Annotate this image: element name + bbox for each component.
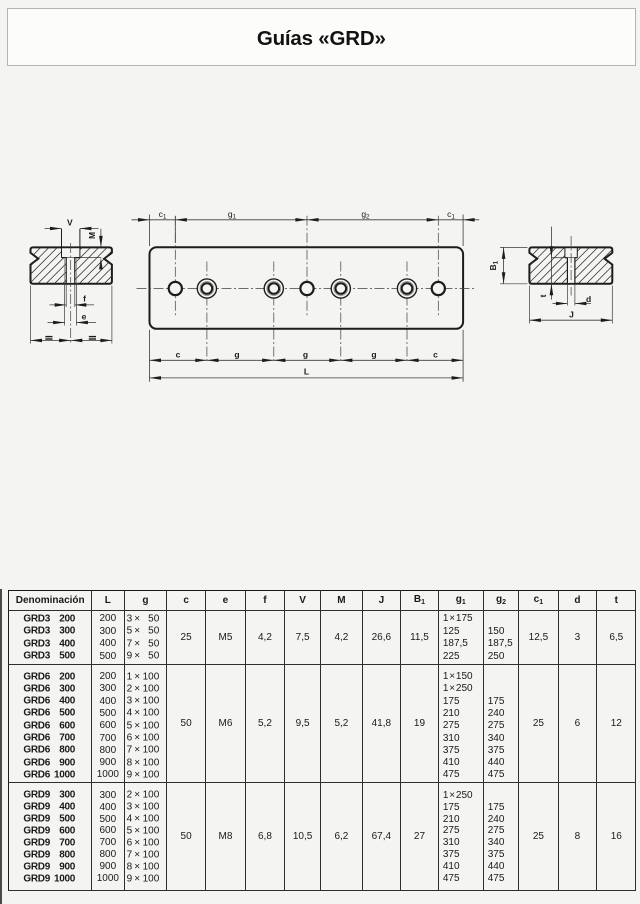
- svg-text:f: f: [83, 294, 86, 304]
- svg-text:M: M: [87, 232, 97, 239]
- svg-text:c1: c1: [159, 209, 167, 221]
- svg-text:t: t: [538, 294, 548, 297]
- svg-text:g: g: [234, 349, 239, 359]
- svg-text:B1: B1: [488, 260, 500, 270]
- svg-text:g: g: [371, 349, 376, 359]
- svg-text:d: d: [586, 294, 591, 304]
- svg-text:V: V: [67, 218, 73, 228]
- svg-text:e: e: [82, 311, 87, 321]
- svg-text:J: J: [569, 310, 574, 320]
- svg-text:g2: g2: [361, 209, 370, 221]
- svg-text:c: c: [176, 349, 181, 359]
- svg-text:L: L: [304, 367, 309, 377]
- svg-text:g1: g1: [228, 209, 237, 221]
- svg-text:g: g: [303, 349, 308, 359]
- svg-text:c1: c1: [447, 209, 455, 221]
- svg-text:c: c: [433, 349, 438, 359]
